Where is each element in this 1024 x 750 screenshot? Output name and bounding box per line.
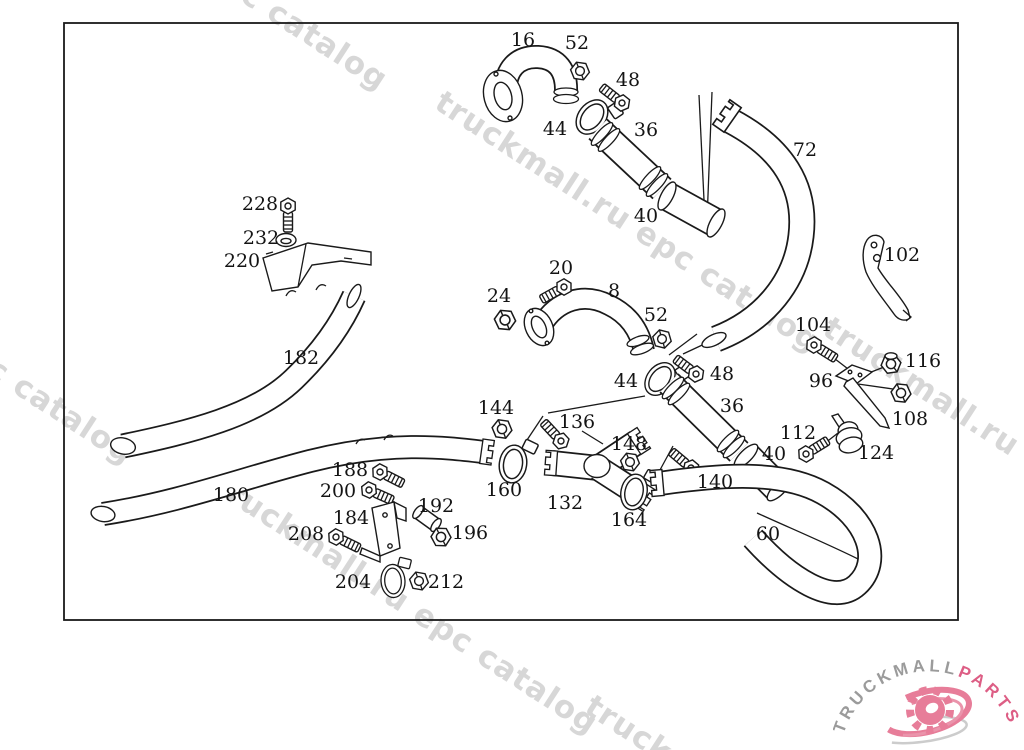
part-bracket-102 bbox=[863, 235, 911, 321]
part-hose-36a bbox=[589, 120, 671, 199]
part-nut-108 bbox=[890, 383, 912, 402]
part-bolt-104 bbox=[803, 335, 839, 365]
part-nut-212 bbox=[408, 571, 430, 590]
part-nut-144 bbox=[491, 419, 513, 439]
part-bolt-112 bbox=[795, 434, 831, 464]
part-elbow-pipe-16 bbox=[478, 57, 579, 126]
part-bracket-220 bbox=[263, 243, 371, 291]
part-pipe-182 bbox=[109, 283, 364, 457]
part-pipe-8 bbox=[519, 299, 655, 357]
part-bolt-208 bbox=[326, 527, 363, 555]
truckmall-parts-logo: TRUCKMALLPARTS bbox=[833, 650, 1023, 748]
part-nut-24 bbox=[494, 310, 517, 330]
part-washer-232 bbox=[276, 234, 296, 247]
part-bracket-96 bbox=[836, 365, 889, 428]
part-clamp-160 bbox=[497, 436, 539, 486]
part-bolt-228 bbox=[281, 198, 295, 232]
part-bracket-184 bbox=[360, 502, 406, 562]
parts-diagram-page: truckmall.ru epc catalogtruckmall.ru epc… bbox=[0, 0, 1024, 750]
part-clamp-204 bbox=[379, 556, 414, 598]
part-mount-124 bbox=[832, 414, 865, 455]
part-hose-60 bbox=[650, 470, 870, 593]
diagram-line-art bbox=[0, 0, 1024, 750]
part-cap-nut-116 bbox=[880, 353, 902, 374]
part-sleeve-40a bbox=[654, 179, 728, 239]
part-bolt-136 bbox=[538, 417, 572, 452]
